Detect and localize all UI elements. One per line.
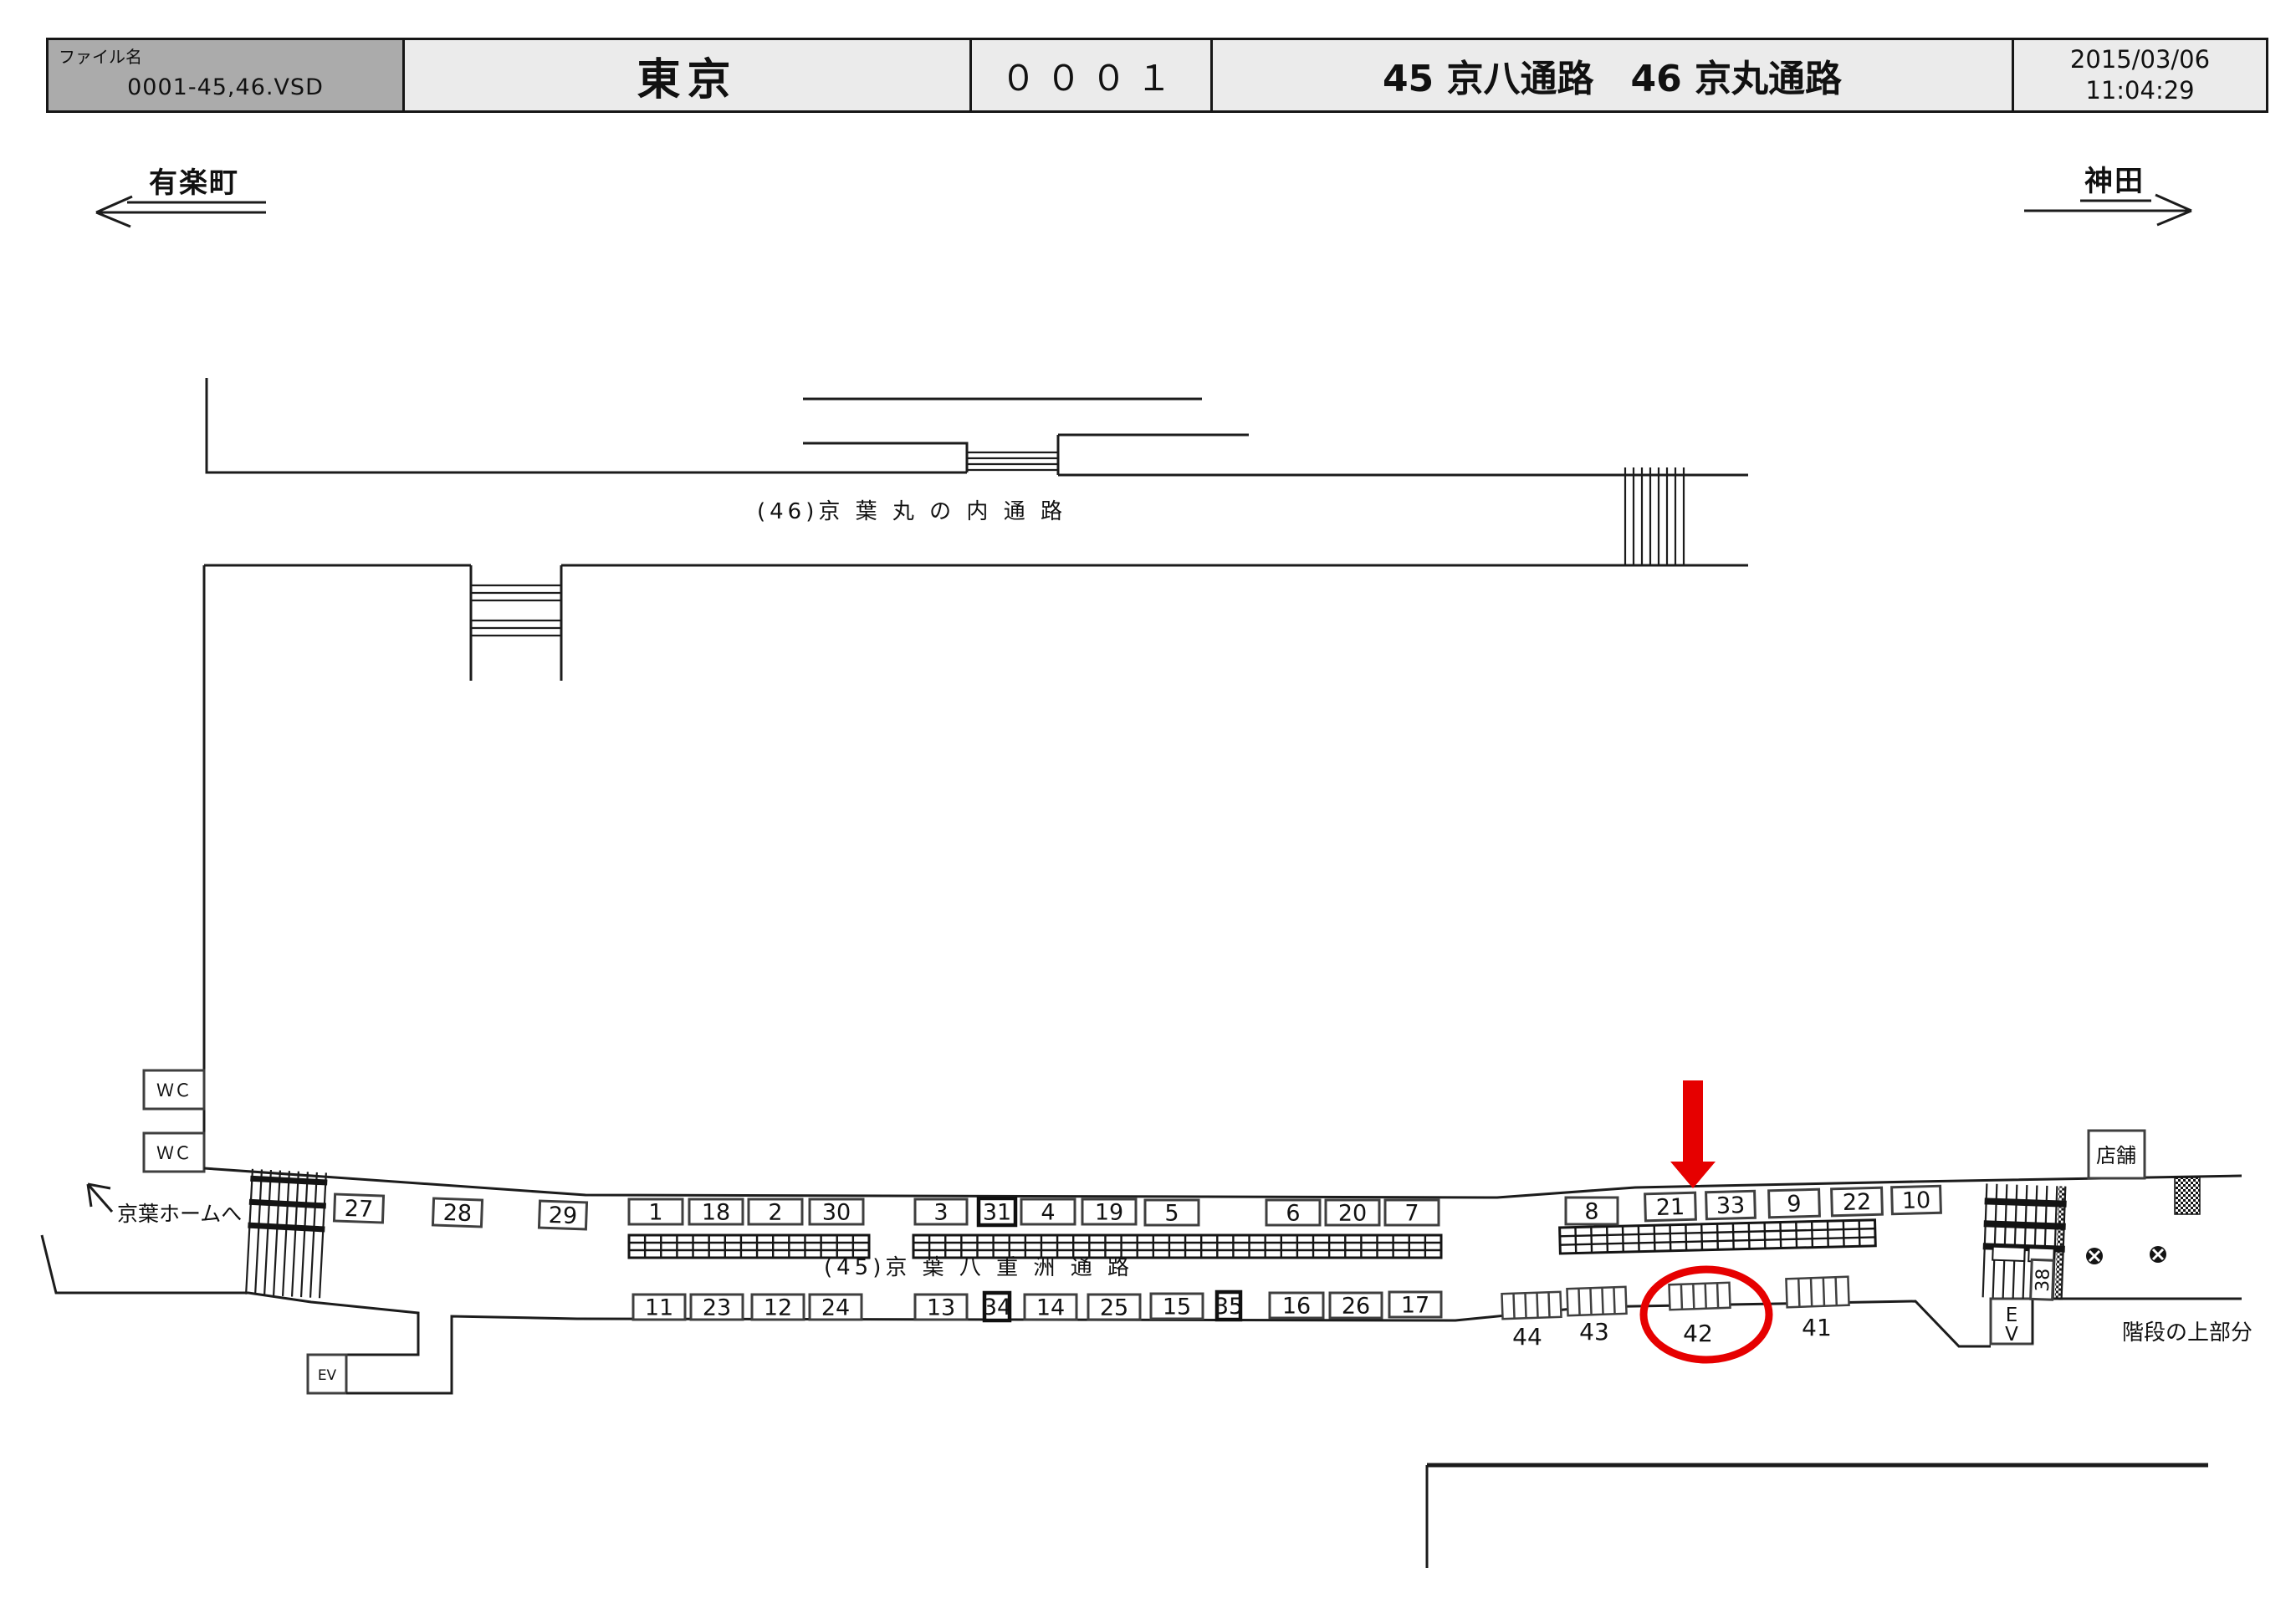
floor-panel-divider — [1681, 1284, 1682, 1310]
grid-strip-col-line — [1623, 1226, 1624, 1252]
location-box-number: 10 — [1901, 1187, 1930, 1214]
up-left-arrow-icon — [88, 1184, 112, 1212]
grid-strip-col-line — [1765, 1223, 1766, 1249]
floor-panel-label-44: 44 — [1512, 1323, 1542, 1351]
location-box-15: 15 — [1151, 1294, 1203, 1320]
location-box-9: 9 — [1769, 1189, 1820, 1218]
grid-strip-col-line — [1685, 1224, 1686, 1250]
location-box-number: 18 — [702, 1200, 730, 1226]
floor-panel-group-41 — [1786, 1277, 1849, 1308]
location-box-number: 22 — [1842, 1189, 1871, 1216]
floor-panel-label-43: 43 — [1579, 1318, 1609, 1346]
grid-strip-2 — [913, 1235, 1441, 1258]
wall-upper-edge-3 — [1058, 435, 1249, 475]
floor-panel-rect — [1567, 1287, 1626, 1315]
floor-panel-divider — [1513, 1294, 1514, 1319]
location-box-number: 23 — [703, 1295, 731, 1321]
location-box-22: 22 — [1832, 1187, 1883, 1216]
location-box-number: 27 — [344, 1196, 373, 1223]
location-box-number: 21 — [1655, 1194, 1685, 1221]
floor-panel-divider — [1578, 1289, 1579, 1315]
location-box-31: 31 — [979, 1198, 1015, 1226]
floor-panel-group-44 — [1501, 1292, 1561, 1319]
location-box-number: 11 — [645, 1295, 673, 1321]
location-box-number: 4 — [1041, 1200, 1055, 1226]
floor-panel-divider — [1525, 1293, 1526, 1318]
ceiling-grid-strips — [629, 1220, 1875, 1258]
floor-panel-rect — [1786, 1277, 1849, 1308]
location-box-21: 21 — [1645, 1192, 1696, 1221]
wall-upper-left — [207, 378, 967, 472]
grid-strip-col-line — [1639, 1226, 1639, 1252]
location-box-33: 33 — [1706, 1191, 1756, 1219]
location-box-number: 13 — [927, 1295, 955, 1321]
right-side-details: 店舗 階段の上部分 — [2086, 1131, 2253, 1346]
wc-rooms: ＷＣ ＷＣ — [144, 1070, 204, 1172]
wall-lower-bottom-left — [42, 1235, 418, 1355]
location-box-number: 3 — [933, 1200, 948, 1226]
grid-strip-col-line — [1575, 1228, 1576, 1254]
location-box-number: 28 — [442, 1200, 472, 1227]
stair-slot — [1992, 1247, 2025, 1261]
location-box-1: 1 — [629, 1199, 683, 1226]
location-box-7: 7 — [1385, 1200, 1439, 1227]
station-diagram-page: ファイル名 0001-45,46.VSD 東京 ０００１ 45 京八通路 46 … — [0, 0, 2296, 1624]
upper-corridor-label: (46)京 葉 丸 の 内 通 路 — [757, 499, 1066, 524]
direction-right-label: 神田 — [2084, 165, 2145, 198]
shop-label: 店舗 — [2096, 1144, 2136, 1167]
location-box-number: 17 — [1401, 1293, 1429, 1319]
left-arrow-icon — [96, 197, 266, 227]
floor-plan: 有楽町 神田 (46)京 葉 丸 の 内 通 路 — [0, 0, 2296, 1624]
location-box-24: 24 — [810, 1295, 862, 1321]
keiyo-platform-label: 京葉ホームへ — [117, 1202, 242, 1226]
location-box-number: 34 — [983, 1295, 1011, 1320]
grid-strip-col-line — [1843, 1221, 1844, 1247]
stairs-top-note: 階段の上部分 — [2122, 1320, 2253, 1346]
highlight-arrow-head — [1670, 1162, 1716, 1188]
location-box-number: 20 — [1338, 1201, 1367, 1227]
location-box-number: 35 — [1214, 1294, 1243, 1320]
grid-strip-col-line — [1733, 1223, 1734, 1249]
keiyo-platform-link: 京葉ホームへ — [88, 1184, 242, 1226]
location-box-number: 5 — [1164, 1201, 1179, 1227]
location-box-18: 18 — [689, 1199, 743, 1226]
location-box-11: 11 — [633, 1295, 685, 1321]
location-box-number: 16 — [1282, 1294, 1311, 1320]
wall-bridge-lines — [967, 452, 1058, 470]
keiyo-stairs-icon — [244, 1169, 328, 1299]
location-box-number: 31 — [983, 1200, 1011, 1226]
right-stairs-icon: 38 — [1982, 1183, 2068, 1300]
grid-strip-frame — [629, 1235, 869, 1258]
floor-panel-divider — [1548, 1292, 1549, 1317]
floor-panel-divider — [1823, 1278, 1824, 1306]
location-box-12: 12 — [752, 1295, 804, 1321]
location-box-number: 19 — [1095, 1200, 1123, 1226]
location-box-6: 6 — [1266, 1200, 1320, 1227]
location-box-28: 28 — [432, 1198, 482, 1228]
grid-strip-col-line — [1591, 1227, 1592, 1253]
right-arrow-icon — [2024, 195, 2191, 225]
grid-strip-col-line — [1749, 1223, 1750, 1249]
floor-panel-divider — [1537, 1293, 1537, 1318]
location-box-8: 8 — [1566, 1198, 1618, 1225]
location-box-number: 26 — [1342, 1294, 1370, 1320]
floor-panel-divider — [1798, 1279, 1799, 1307]
location-box-number: 15 — [1163, 1295, 1191, 1320]
location-box-30: 30 — [810, 1199, 863, 1226]
location-box-25: 25 — [1088, 1295, 1140, 1321]
location-box-38-label: 38 — [2033, 1268, 2054, 1292]
location-box-10: 10 — [1892, 1186, 1941, 1214]
stairwell-treads-icon — [471, 585, 561, 636]
floor-panel-group-42 — [1669, 1283, 1730, 1310]
location-box-14: 14 — [1025, 1295, 1076, 1321]
location-box-17: 17 — [1389, 1292, 1441, 1319]
pillar-symbol-icon — [2150, 1246, 2166, 1263]
floor-panel-group-43 — [1567, 1287, 1626, 1315]
grid-strip-col-line — [1717, 1223, 1718, 1249]
location-box-number: 29 — [548, 1203, 577, 1229]
location-box-number: 9 — [1787, 1191, 1802, 1217]
location-box-number: 2 — [768, 1200, 782, 1226]
location-box-20: 20 — [1326, 1200, 1379, 1227]
location-box-29: 29 — [539, 1201, 586, 1229]
elevator-left-label: EV — [318, 1367, 337, 1384]
grid-strip-col-line — [1828, 1221, 1828, 1247]
location-box-number: 33 — [1716, 1192, 1745, 1219]
wc-label-1: ＷＣ — [156, 1080, 192, 1101]
floor-panel-divider — [1811, 1278, 1812, 1306]
location-box-number: 6 — [1286, 1201, 1300, 1227]
location-box-number: 24 — [821, 1295, 850, 1321]
grid-strip-1 — [629, 1235, 869, 1258]
location-box-35: 35 — [1214, 1292, 1243, 1320]
floor-panel-label-42: 42 — [1683, 1320, 1713, 1347]
location-box-number: 14 — [1036, 1295, 1065, 1321]
direction-yurakucho: 有楽町 — [96, 166, 266, 227]
keiyo-stairs-bars — [246, 1169, 326, 1298]
pillar-symbol-icon — [2086, 1248, 2103, 1264]
location-box-16: 16 — [1270, 1293, 1323, 1320]
grid-strip-col-line — [1859, 1220, 1860, 1246]
direction-left-label: 有楽町 — [149, 166, 239, 200]
floor-panel-divider — [1613, 1287, 1614, 1314]
location-box-23: 23 — [691, 1295, 743, 1321]
location-box-19: 19 — [1082, 1199, 1136, 1226]
location-box-number: 12 — [764, 1295, 792, 1321]
floor-panel-groups: 44434241 — [1501, 1277, 1849, 1351]
grid-strip-col-line — [1607, 1227, 1608, 1253]
highlight-arrow-stem — [1683, 1080, 1703, 1162]
bottom-row-location-boxes: 11231224133414251535162617 — [633, 1292, 1441, 1321]
floor-panel-rect — [1669, 1283, 1730, 1310]
floor-panel-rect — [1501, 1292, 1561, 1319]
upper-corridor-walls: (46)京 葉 丸 の 内 通 路 — [204, 378, 1748, 1168]
grid-strip-col-line — [1701, 1224, 1702, 1250]
location-box-27: 27 — [334, 1194, 383, 1223]
location-box-number: 30 — [822, 1200, 851, 1226]
location-box-26: 26 — [1330, 1293, 1382, 1320]
grid-strip-col-line — [1654, 1225, 1655, 1251]
wc-label-2: ＷＣ — [156, 1143, 192, 1163]
location-box-3: 3 — [915, 1199, 967, 1226]
grid-strip-col-line — [1780, 1223, 1781, 1249]
wall-upper-edge-2 — [803, 443, 967, 472]
location-box-number: 1 — [648, 1200, 662, 1226]
floor-panel-divider — [1590, 1288, 1591, 1315]
upper-right-stairs-icon — [1625, 467, 1684, 565]
elevator-right-label-2: V — [2005, 1324, 2018, 1346]
location-box-4: 4 — [1021, 1199, 1075, 1226]
grid-strip-col-line — [1796, 1222, 1797, 1248]
floor-panel-divider — [1836, 1277, 1837, 1305]
location-box-number: 25 — [1100, 1295, 1128, 1321]
direction-kanda: 神田 — [2024, 165, 2191, 225]
floor-panel-divider — [1705, 1284, 1706, 1309]
grid-strip-col-line — [1812, 1222, 1813, 1248]
location-box-13: 13 — [915, 1295, 967, 1321]
location-box-5: 5 — [1145, 1200, 1199, 1227]
location-box-number: 7 — [1404, 1201, 1419, 1227]
location-box-number: 8 — [1584, 1199, 1598, 1225]
wall-texture-block — [2175, 1177, 2200, 1214]
floor-panel-divider — [1693, 1284, 1694, 1309]
stairwell-sides — [471, 565, 561, 681]
location-box-34: 34 — [983, 1293, 1011, 1320]
location-box-2: 2 — [749, 1199, 802, 1226]
floor-panel-divider — [1602, 1288, 1603, 1315]
grid-strip-col-line — [1670, 1225, 1671, 1251]
floor-panel-label-41: 41 — [1802, 1314, 1832, 1341]
floor-panel-divider — [1717, 1283, 1718, 1308]
